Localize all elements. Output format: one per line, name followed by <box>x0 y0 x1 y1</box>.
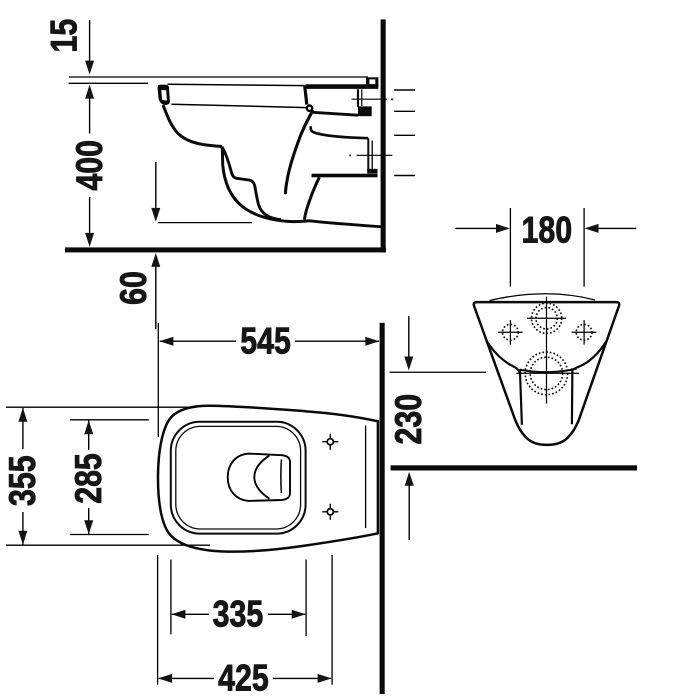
svg-text:545: 545 <box>240 321 291 363</box>
svg-text:355: 355 <box>2 455 44 506</box>
svg-text:335: 335 <box>213 594 264 636</box>
svg-text:425: 425 <box>218 658 269 700</box>
svg-text:230: 230 <box>388 394 430 445</box>
svg-text:180: 180 <box>521 210 572 252</box>
svg-text:15: 15 <box>44 19 86 53</box>
svg-text:285: 285 <box>68 453 110 504</box>
svg-text:400: 400 <box>69 140 111 191</box>
svg-text:60: 60 <box>113 271 155 305</box>
